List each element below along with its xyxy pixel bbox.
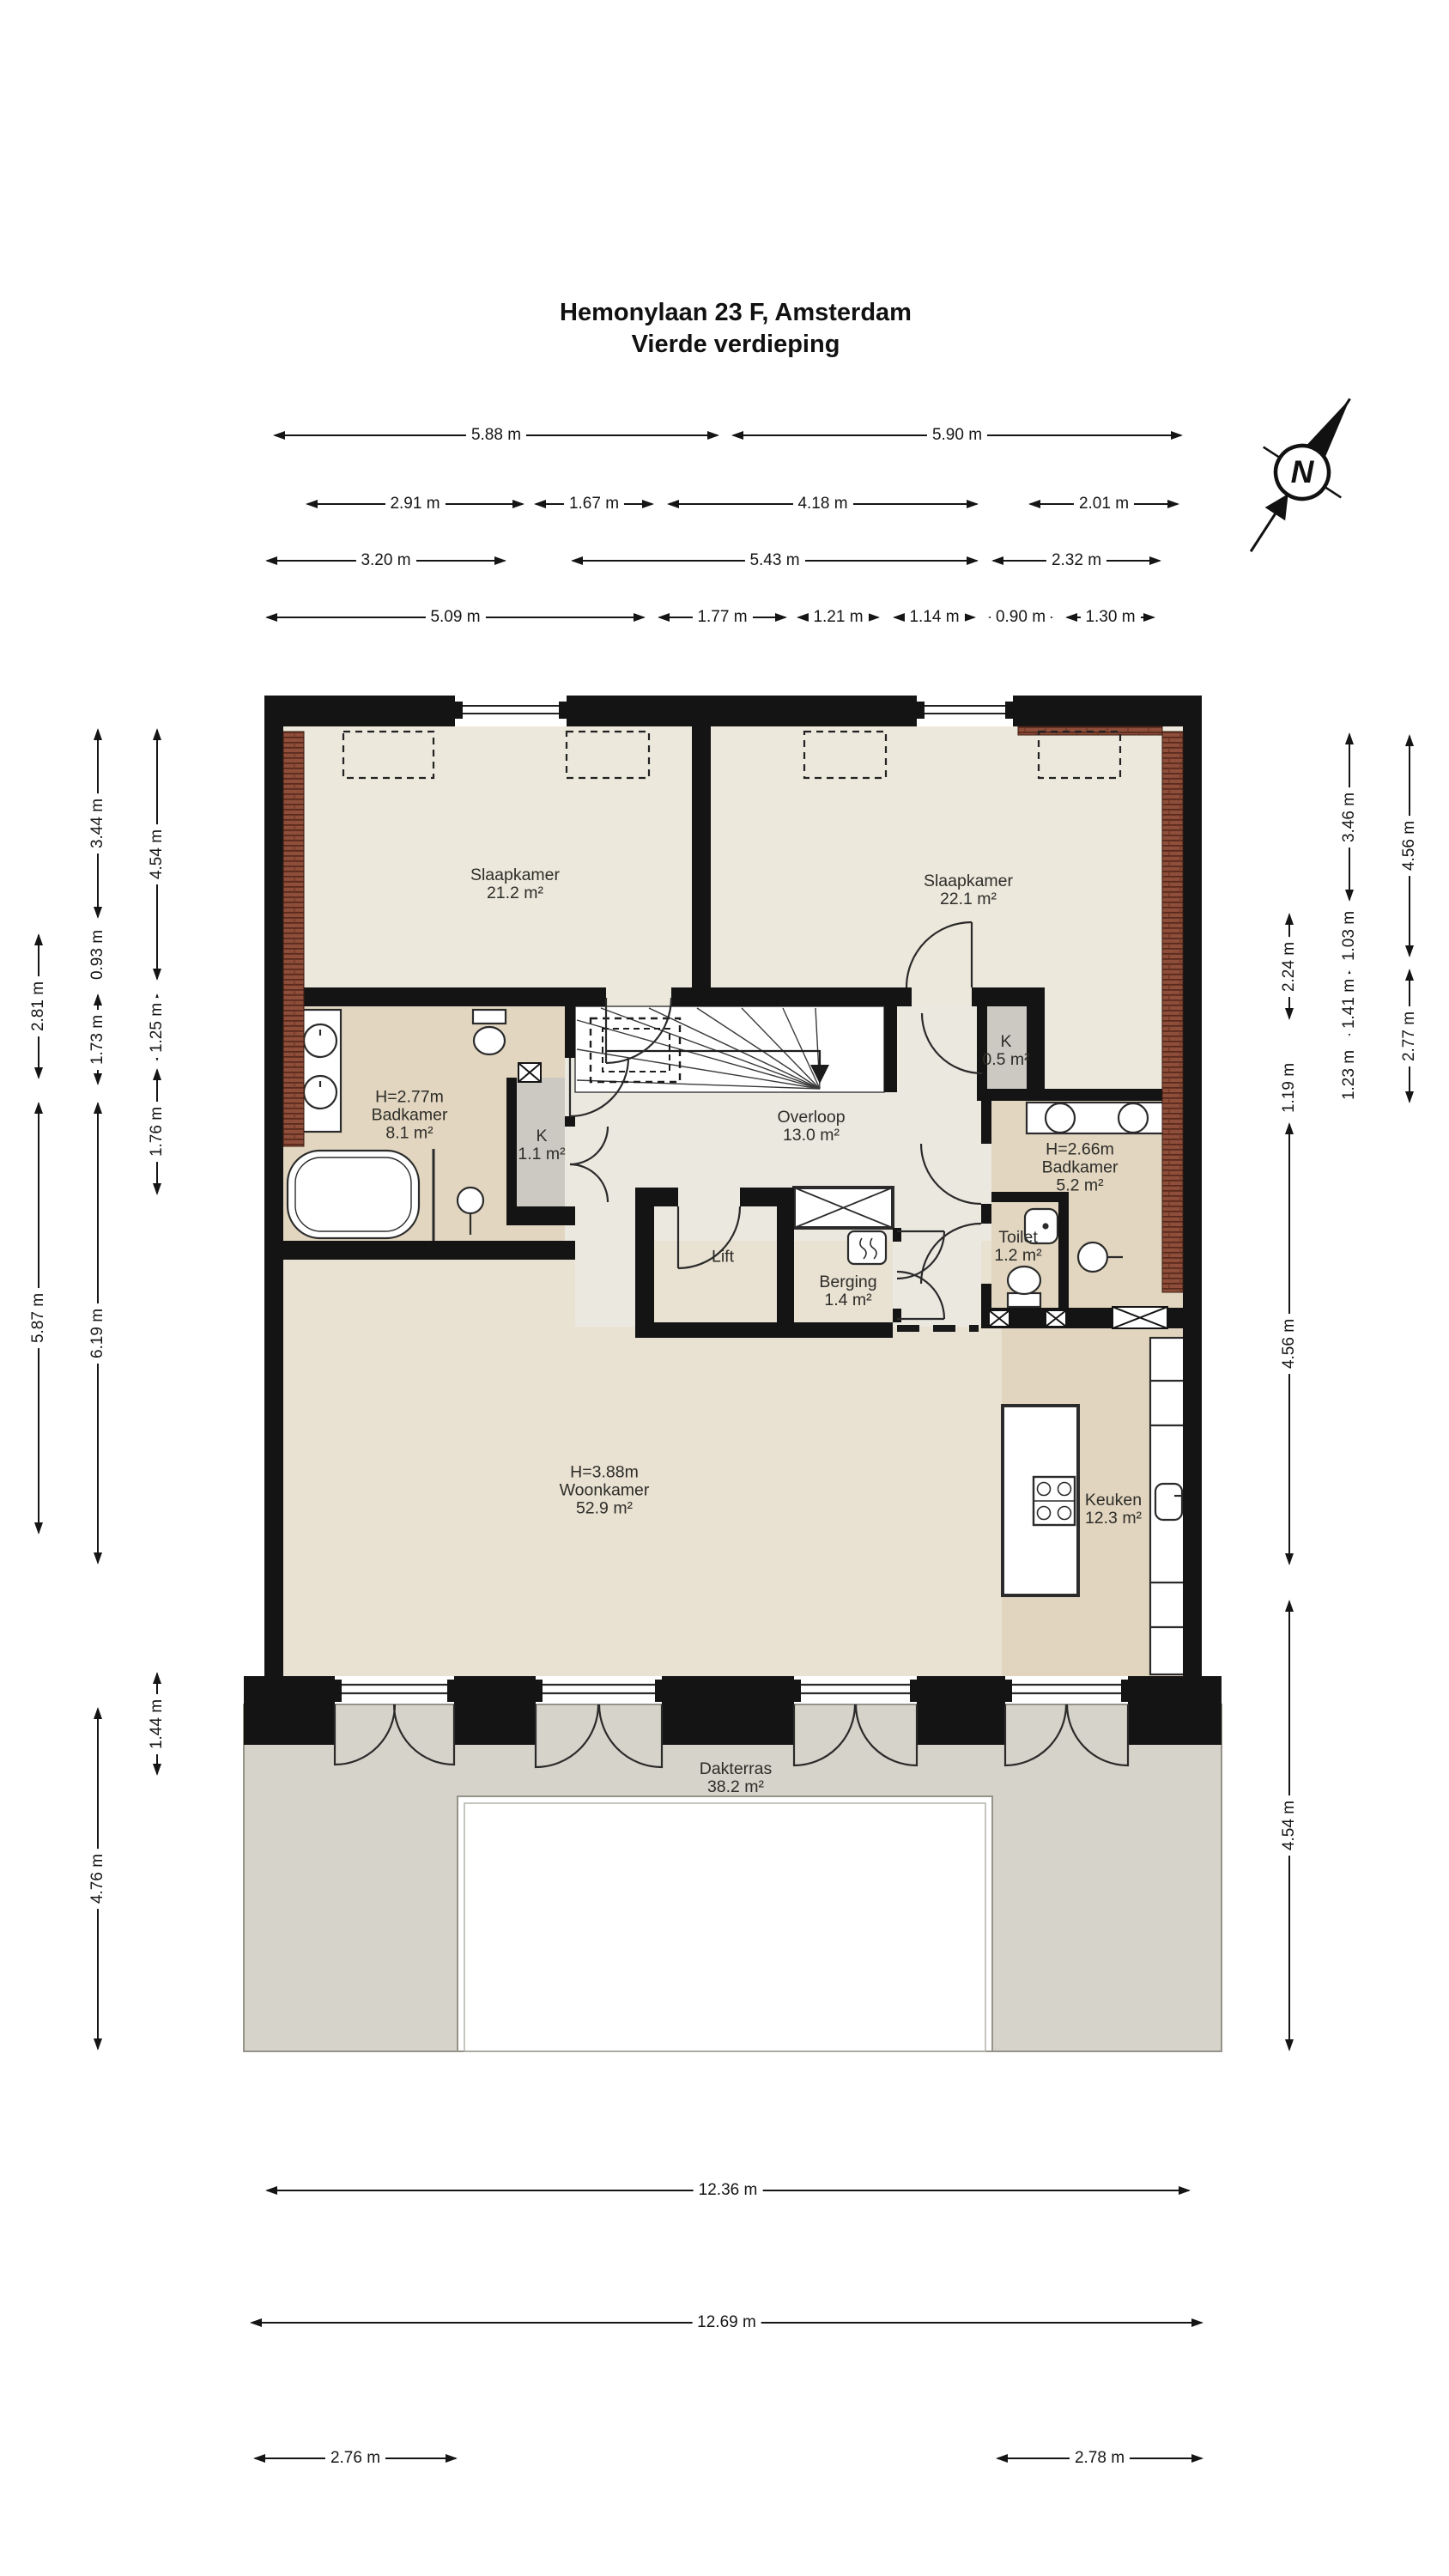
dimension-label: 2.78 m [1070,2449,1130,2468]
dimension-horizontal: 1.14 m [893,609,976,626]
dimension-vertical: 3.46 m [1341,732,1358,902]
dimension-horizontal: 12.69 m [250,2314,1203,2331]
dimension-vertical: 0.93 m [89,929,106,981]
dimension-label: 4.76 m [88,1849,107,1909]
room-label-overloop: Overloop13.0 m² [777,1109,845,1145]
dimension-label: 1.25 m [148,997,167,1057]
room-label-line: 22.1 m² [924,890,1013,908]
sink-icon [1046,1103,1075,1133]
room-label-line: K [982,1033,1029,1051]
dimension-label: 2.32 m [1046,551,1106,570]
dimension-label: 2.91 m [385,495,445,513]
dimension-vertical: 4.76 m [89,1707,106,2050]
room-label-line: Dakterras [700,1760,773,1778]
room-label-line: 8.1 m² [372,1125,448,1143]
dimension-label: 3.46 m [1340,787,1359,847]
dimension-vertical: 5.87 m [30,1102,47,1534]
dimension-vertical: 1.44 m [149,1672,166,1776]
dimension-vertical: 1.25 m [149,993,166,1061]
room-label-line: Berging [819,1273,876,1291]
dimension-label: 4.18 m [792,495,852,513]
dimension-vertical: 1.73 m [89,993,106,1085]
room-label-line: H=2.66m [1042,1141,1119,1159]
room-label-line: H=3.88m [560,1464,650,1482]
dimension-vertical: 1.19 m [1281,1059,1298,1116]
room-label-line: Lift [712,1249,734,1267]
room-label-woonkamer: H=3.88mWoonkamer52.9 m² [560,1464,650,1518]
dimension-label: 1.76 m [148,1102,167,1162]
sink-icon [304,1024,336,1057]
floors [244,726,1222,2051]
stairs [575,1006,884,1092]
dimension-horizontal: 1.67 m [534,495,654,513]
dimension-horizontal: 0.90 m [988,609,1053,626]
dimension-vertical: 4.56 m [1281,1122,1298,1565]
dimension-label: 12.69 m [692,2313,761,2332]
room-label-line: K [518,1127,565,1145]
room-label-line: H=2.77m [372,1089,448,1107]
room-label-line: Badkamer [1042,1159,1119,1177]
dimension-label: 1.19 m [1280,1057,1299,1117]
dimension-label: 1.73 m [88,1009,107,1069]
room-label-badkamer-right: H=2.66mBadkamer5.2 m² [1042,1141,1119,1195]
room-label-line: 13.0 m² [777,1127,845,1145]
window-icon [917,697,1013,725]
dimension-horizontal: 1.30 m [1065,609,1155,626]
room-label-badkamer-left: H=2.77mBadkamer8.1 m² [372,1089,448,1143]
dimension-label: 1.23 m [1340,1044,1359,1104]
dimension-horizontal: 5.90 m [731,427,1183,444]
room-label-line: Slaapkamer [470,866,560,884]
dimension-label: 5.88 m [466,426,526,445]
dimension-vertical: 1.76 m [149,1068,166,1195]
room-label-line: Keuken [1085,1492,1142,1510]
dimension-horizontal: 5.09 m [265,609,646,626]
floorplan-page: { "title": { "line1": "Hemonylaan 23 F, … [0,0,1449,2576]
dimension-vertical: 2.81 m [30,933,47,1079]
dimension-label: 4.56 m [1400,816,1419,876]
room-label-kast-right: K0.5 m² [982,1033,1029,1069]
kitchen-sink-icon [1155,1484,1182,1520]
room-label-keuken: Keuken12.3 m² [1085,1492,1142,1528]
room-label-line: 0.5 m² [982,1051,1029,1069]
dimension-horizontal: 5.88 m [273,427,719,444]
dimension-label: 2.77 m [1400,1005,1419,1066]
room-label-line: Badkamer [372,1107,448,1125]
room-label-slaapkamer-left: Slaapkamer21.2 m² [470,866,560,902]
dimension-label: 6.19 m [88,1303,107,1363]
dimension-vertical: 6.19 m [89,1102,106,1564]
pedestal-sink-icon [458,1188,483,1213]
toilet-icon [1008,1293,1040,1307]
dimension-vertical: 2.77 m [1401,969,1418,1103]
dimension-label: 0.93 m [88,925,107,985]
dimension-horizontal: 2.78 m [996,2450,1203,2467]
dimension-label: 4.54 m [148,824,167,884]
room-label-line: 38.2 m² [700,1778,773,1796]
room-label-slaapkamer-right: Slaapkamer22.1 m² [924,872,1013,908]
dimension-label: 3.20 m [355,551,415,570]
dimension-label: 1.41 m [1340,973,1359,1033]
room-label-line: 1.2 m² [994,1247,1041,1265]
dimension-label: 12.36 m [694,2181,763,2200]
sink-icon [1119,1103,1148,1133]
dimension-label: 1.44 m [148,1693,167,1753]
dimension-label: 1.77 m [692,608,752,627]
dimension-label: 5.09 m [425,608,485,627]
dimension-horizontal: 1.21 m [797,609,880,626]
window-icon [455,697,567,725]
dimension-label: 5.43 m [744,551,804,570]
dimension-horizontal: 4.18 m [667,495,979,513]
dimension-vertical: 2.24 m [1281,913,1298,1020]
dimension-horizontal: 2.01 m [1028,495,1179,513]
dimension-label: 1.21 m [808,608,868,627]
dimension-horizontal: 2.32 m [991,552,1161,569]
room-label-berging: Berging1.4 m² [819,1273,876,1309]
dimension-vertical: 4.54 m [149,728,166,981]
boiler-icon [848,1231,886,1264]
pedestal-sink-icon [1078,1242,1107,1272]
dimension-vertical: 1.41 m [1341,970,1358,1036]
dimension-label: 4.56 m [1280,1314,1299,1374]
toilet-icon [473,1010,506,1024]
dimension-vertical: 1.23 m [1341,1048,1358,1102]
dimension-vertical: 3.44 m [89,728,106,919]
dimension-horizontal: 12.36 m [265,2182,1191,2199]
dimension-label: 2.76 m [325,2449,385,2468]
room-label-line: 5.2 m² [1042,1177,1119,1195]
dimension-label: 2.81 m [29,976,48,1036]
dimension-horizontal: 2.76 m [253,2450,458,2467]
dimension-horizontal: 2.91 m [306,495,524,513]
room-label-toilet: Toilet1.2 m² [994,1229,1041,1265]
room-label-line: 52.9 m² [560,1500,650,1518]
room-label-dakterras: Dakterras38.2 m² [700,1760,773,1796]
dimension-label: 5.87 m [29,1288,48,1348]
room-label-line: 12.3 m² [1085,1510,1142,1528]
sink-icon [304,1076,336,1109]
room-label-line: 1.1 m² [518,1145,565,1163]
room-label-line: 1.4 m² [819,1291,876,1309]
room-label-line: Toilet [994,1229,1041,1247]
dimension-vertical: 1.03 m [1341,913,1358,959]
room-label-lift: Lift [712,1249,734,1267]
room-label-line: Woonkamer [560,1482,650,1500]
dimension-label: 2.24 m [1280,936,1299,996]
dimension-label: 1.14 m [904,608,964,627]
dimension-label: 1.67 m [564,495,624,513]
dimension-horizontal: 3.20 m [265,552,506,569]
room-label-line: Overloop [777,1109,845,1127]
dimension-label: 2.01 m [1074,495,1134,513]
dimension-label: 1.30 m [1080,608,1140,627]
dimension-horizontal: 5.43 m [571,552,979,569]
room-label-kast-left: K1.1 m² [518,1127,565,1163]
room-label-line: 21.2 m² [470,884,560,902]
dimension-label: 5.90 m [927,426,987,445]
dimension-vertical: 4.54 m [1281,1600,1298,2051]
dimension-label: 4.54 m [1280,1795,1299,1856]
dimension-label: 3.44 m [88,793,107,854]
dimension-horizontal: 1.77 m [658,609,787,626]
room-label-line: Slaapkamer [924,872,1013,890]
dimension-label: 0.90 m [991,608,1051,627]
dimension-vertical: 4.56 m [1401,734,1418,957]
dimension-label: 1.03 m [1340,906,1359,966]
